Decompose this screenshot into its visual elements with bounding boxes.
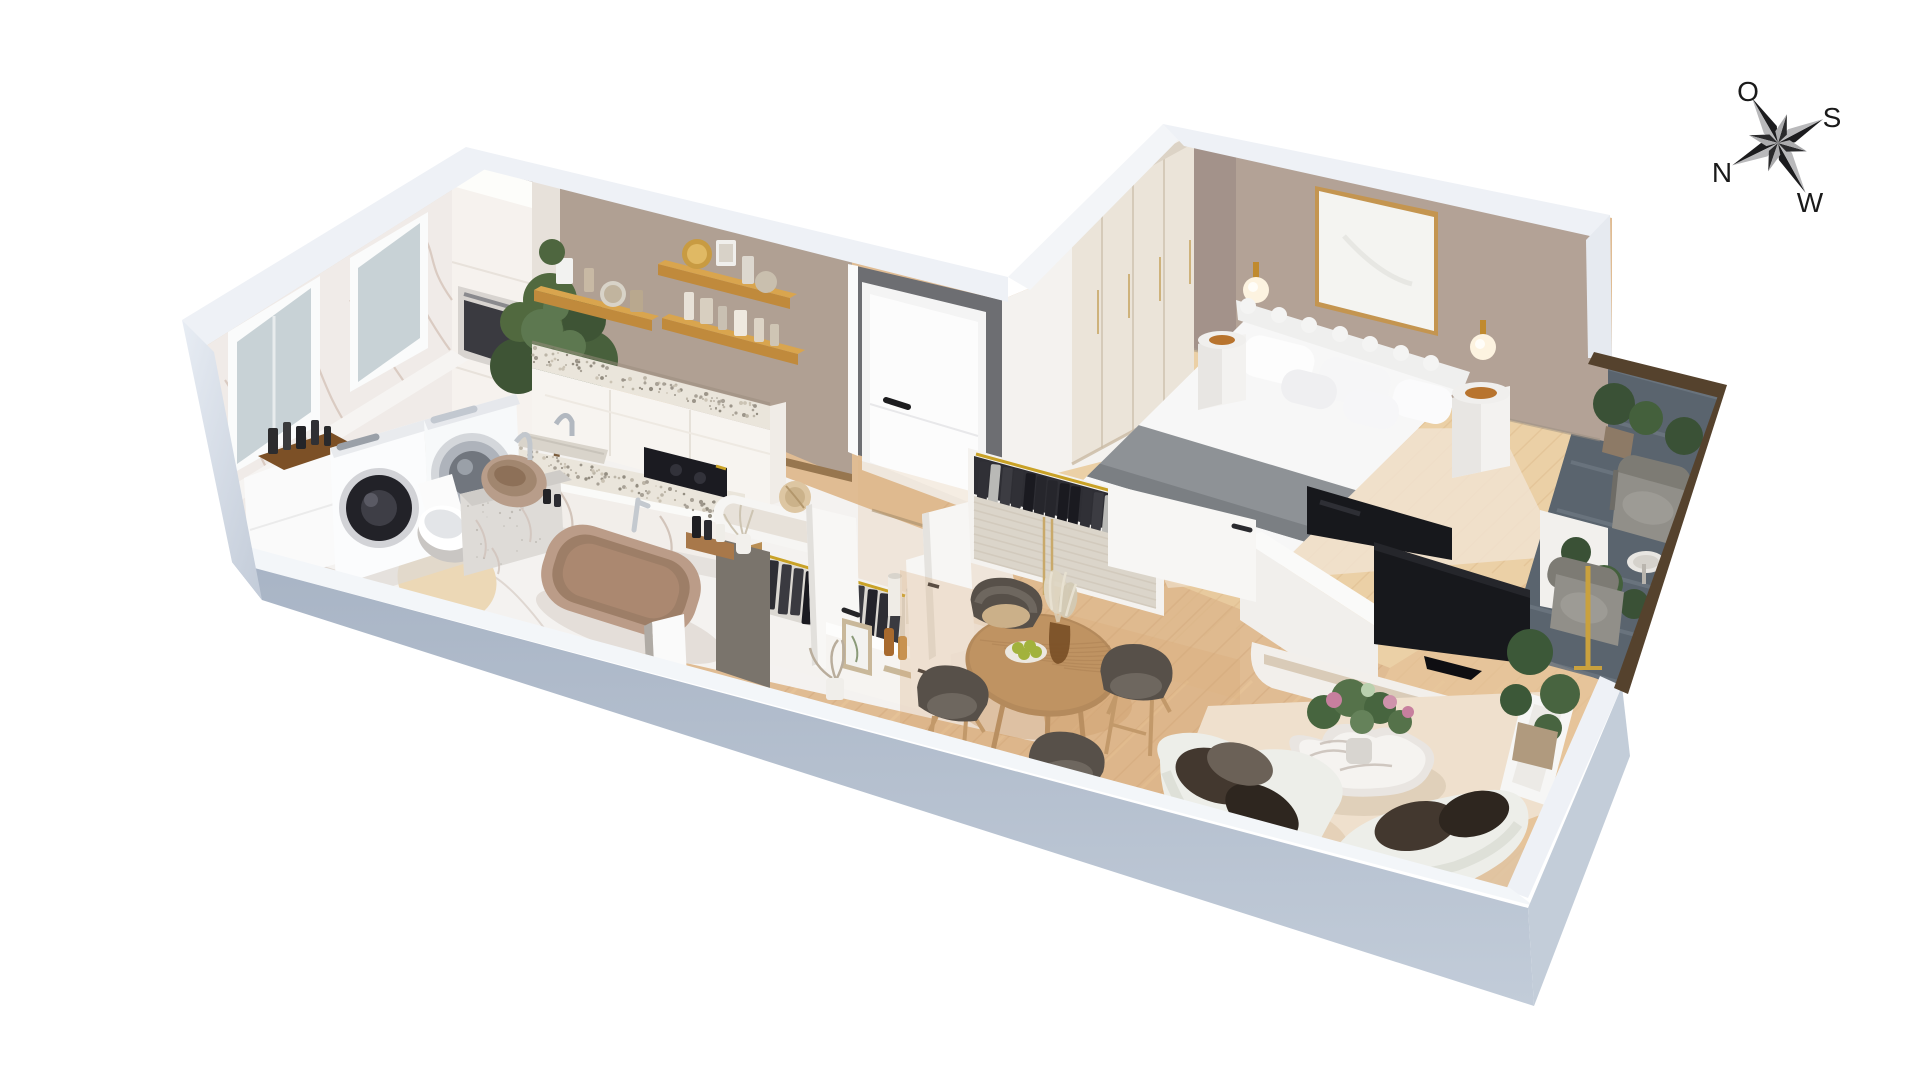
svg-text:N: N <box>1712 157 1732 188</box>
svg-text:O: O <box>1737 76 1759 107</box>
svg-text:W: W <box>1797 187 1824 218</box>
svg-text:S: S <box>1823 102 1842 133</box>
